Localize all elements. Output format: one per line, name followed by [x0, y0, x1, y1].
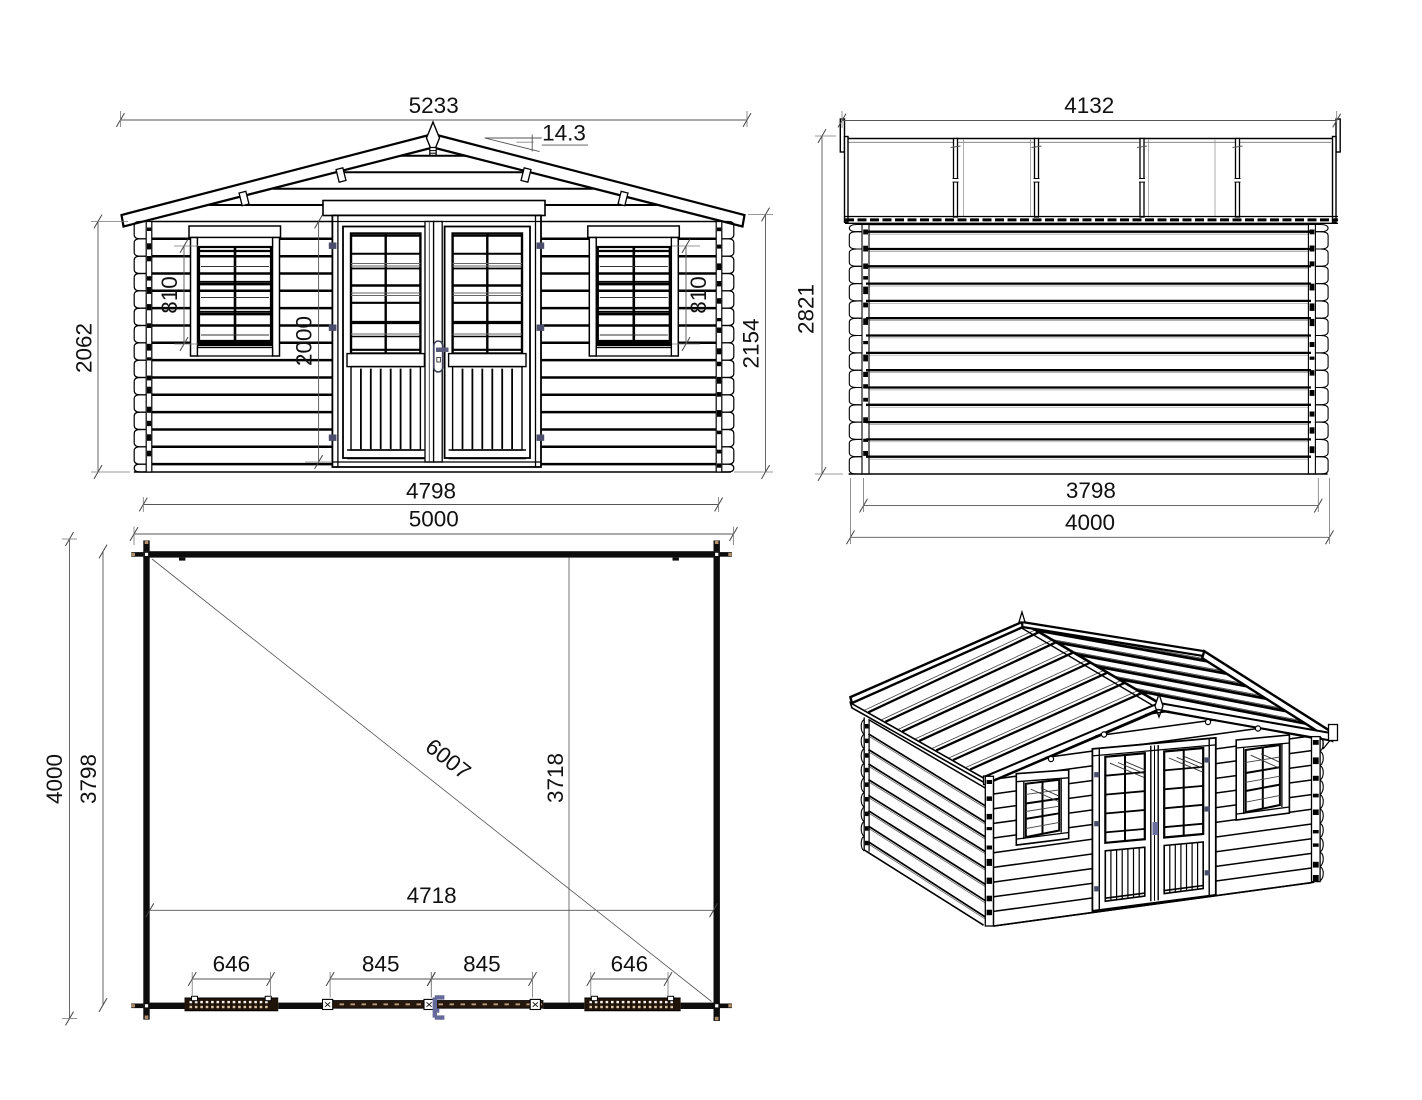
svg-text:810: 810: [157, 276, 182, 314]
svg-text:3798: 3798: [1066, 478, 1116, 503]
svg-text:4000: 4000: [42, 754, 67, 804]
svg-text:2062: 2062: [72, 323, 97, 373]
svg-text:4798: 4798: [406, 479, 456, 504]
svg-text:5000: 5000: [409, 507, 459, 532]
svg-text:3798: 3798: [76, 754, 101, 804]
svg-text:4718: 4718: [407, 883, 457, 908]
svg-text:4132: 4132: [1064, 93, 1114, 118]
svg-text:646: 646: [611, 952, 649, 977]
svg-text:2000: 2000: [292, 316, 317, 366]
svg-text:5233: 5233: [409, 93, 459, 118]
svg-text:2154: 2154: [739, 318, 764, 368]
svg-text:4000: 4000: [1065, 510, 1115, 535]
svg-text:3718: 3718: [543, 753, 568, 803]
svg-text:845: 845: [463, 952, 501, 977]
svg-text:810: 810: [686, 276, 711, 314]
svg-text:646: 646: [213, 952, 251, 977]
svg-text:14.3: 14.3: [542, 121, 586, 146]
svg-text:2821: 2821: [794, 284, 819, 334]
svg-text:845: 845: [362, 952, 400, 977]
